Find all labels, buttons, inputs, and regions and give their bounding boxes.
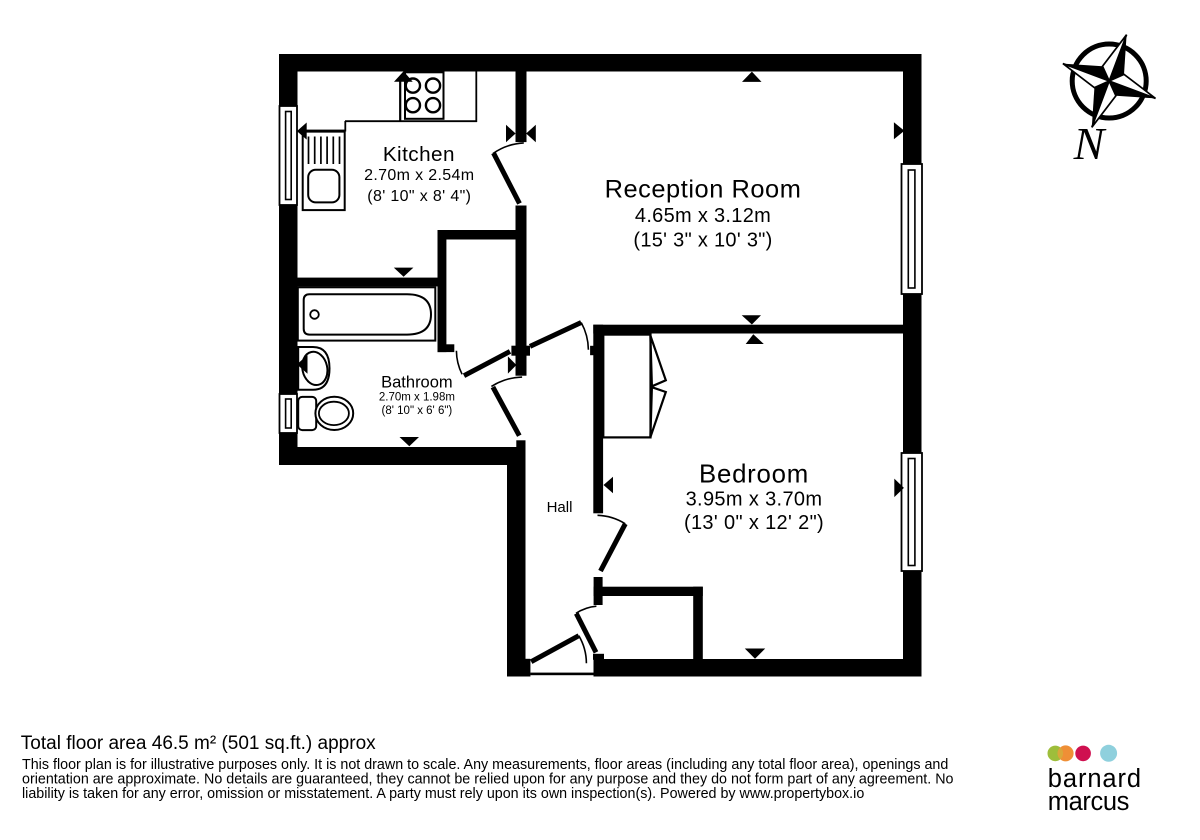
- svg-text:Total floor area 46.5 m² (501: Total floor area 46.5 m² (501 sq.ft.) ap…: [21, 733, 376, 754]
- svg-text:(13' 0" x 12' 2"): (13' 0" x 12' 2"): [684, 512, 824, 534]
- svg-text:3.95m x 3.70m: 3.95m x 3.70m: [686, 489, 823, 511]
- svg-text:(8' 10" x 6' 6"): (8' 10" x 6' 6"): [382, 405, 453, 417]
- svg-text:(15' 3" x 10' 3"): (15' 3" x 10' 3"): [633, 229, 772, 251]
- svg-text:Bathroom: Bathroom: [381, 373, 453, 391]
- svg-text:Reception Room: Reception Room: [605, 176, 802, 204]
- svg-text:This floor plan is for illustr: This floor plan is for illustrative purp…: [22, 757, 948, 773]
- svg-text:2.70m x 1.98m: 2.70m x 1.98m: [379, 392, 455, 404]
- svg-text:Kitchen: Kitchen: [383, 143, 455, 166]
- svg-text:Bedroom: Bedroom: [699, 460, 809, 488]
- svg-text:N: N: [1073, 118, 1107, 169]
- svg-text:liability is taken for any err: liability is taken for any error, omissi…: [22, 786, 864, 802]
- svg-text:(8' 10" x 8' 4"): (8' 10" x 8' 4"): [367, 188, 471, 205]
- svg-text:2.70m x 2.54m: 2.70m x 2.54m: [364, 167, 474, 184]
- svg-text:Hall: Hall: [547, 499, 573, 516]
- svg-text:marcus: marcus: [1048, 788, 1129, 816]
- svg-text:orientation are approximate. N: orientation are approximate. No details …: [22, 772, 954, 788]
- svg-text:4.65m x 3.12m: 4.65m x 3.12m: [635, 205, 771, 227]
